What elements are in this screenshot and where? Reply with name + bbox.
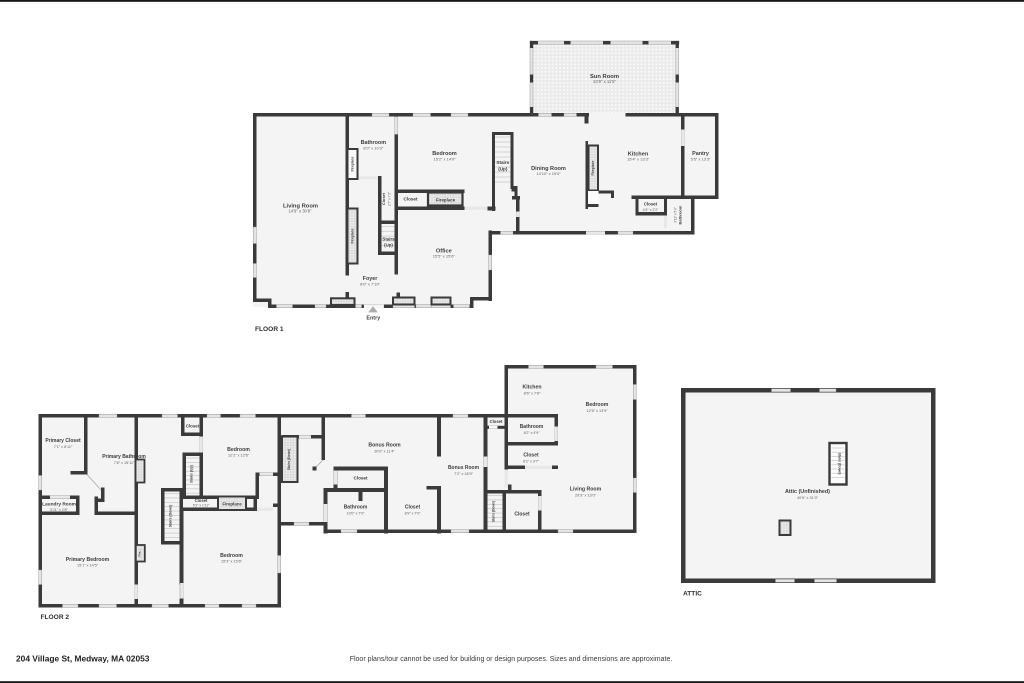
svg-text:Bathroom: Bathroom xyxy=(344,505,368,511)
svg-text:FLOOR 1: FLOOR 1 xyxy=(255,326,284,333)
svg-text:5’11” x 2’8”: 5’11” x 2’8” xyxy=(50,508,68,512)
svg-text:23’6” x 11’5”: 23’6” x 11’5” xyxy=(593,79,616,84)
svg-text:Stairs (Down): Stairs (Down) xyxy=(169,505,173,528)
svg-text:Floor plans/tour cannot be use: Floor plans/tour cannot be used for buil… xyxy=(350,656,673,663)
svg-text:Bedroom: Bedroom xyxy=(227,447,250,453)
svg-text:15’1” x 14’5”: 15’1” x 14’5” xyxy=(77,564,99,568)
svg-text:Bedroom: Bedroom xyxy=(220,553,243,559)
svg-text:20’3” x 13’0”: 20’3” x 13’0” xyxy=(575,494,597,498)
svg-text:8’2” x 3’7”: 8’2” x 3’7” xyxy=(523,459,540,463)
svg-text:8’0” x 10’3”: 8’0” x 10’3” xyxy=(363,145,383,150)
svg-text:Closet: Closet xyxy=(353,476,368,481)
svg-text:Bathroom: Bathroom xyxy=(678,205,683,224)
svg-text:Closet: Closet xyxy=(644,202,658,207)
svg-text:15’3” x 15’6”: 15’3” x 15’6” xyxy=(221,560,243,564)
svg-text:8’6” x 7’8”: 8’6” x 7’8” xyxy=(524,392,541,396)
svg-text:12’5” x 13’9”: 12’5” x 13’9” xyxy=(587,409,609,413)
svg-text:4’4” x 2’2”: 4’4” x 2’2” xyxy=(643,208,660,212)
svg-text:Closet: Closet xyxy=(523,453,539,459)
svg-text:Stairs (Down): Stairs (Down) xyxy=(287,449,291,470)
svg-text:2’7” x 7’3”: 2’7” x 7’3” xyxy=(387,192,391,206)
svg-text:Closet: Closet xyxy=(195,498,208,503)
svg-text:5’3” x 1’11”: 5’3” x 1’11” xyxy=(193,503,210,507)
svg-text:(Up): (Up) xyxy=(384,243,393,248)
svg-text:Bonus Room: Bonus Room xyxy=(448,465,480,471)
svg-text:Stairs (Down): Stairs (Down) xyxy=(838,453,842,475)
svg-text:14’9” x 30’8”: 14’9” x 30’8” xyxy=(288,209,312,214)
svg-text:10’0” x 7’0”: 10’0” x 7’0” xyxy=(347,511,366,515)
svg-text:Closet: Closet xyxy=(186,424,200,429)
svg-text:14’10” x 19’0”: 14’10” x 19’0” xyxy=(536,171,561,176)
svg-text:8’0” x 7’10”: 8’0” x 7’10” xyxy=(360,281,380,286)
svg-text:FLOOR 2: FLOOR 2 xyxy=(41,614,70,621)
svg-text:204 Village St, Medway, MA 020: 204 Village St, Medway, MA 02053 xyxy=(16,654,150,664)
svg-text:3’11” x 5’4”: 3’11” x 5’4” xyxy=(673,207,677,223)
svg-text:Closet: Closet xyxy=(490,419,503,424)
svg-text:Laundry Room: Laundry Room xyxy=(42,502,76,508)
svg-text:8’2” x 4’9”: 8’2” x 4’9” xyxy=(524,431,541,435)
svg-text:Bonus Room: Bonus Room xyxy=(368,443,401,449)
svg-text:Primary Bedroom: Primary Bedroom xyxy=(66,557,110,563)
svg-text:Living Room: Living Room xyxy=(570,487,602,493)
svg-text:Fireplace: Fireplace xyxy=(436,197,456,202)
svg-text:Closet: Closet xyxy=(403,197,418,202)
svg-text:Fireplace: Fireplace xyxy=(222,501,242,506)
svg-text:Stairs: Stairs xyxy=(382,237,395,242)
svg-text:Kitchen: Kitchen xyxy=(522,385,541,391)
svg-text:15’4” x 13’3”: 15’4” x 13’3” xyxy=(627,157,650,162)
svg-text:Stairs: Stairs xyxy=(496,160,509,165)
svg-text:Bedroom: Bedroom xyxy=(586,402,609,408)
svg-text:ATTIC: ATTIC xyxy=(683,591,702,598)
svg-text:20’0” x 11’4”: 20’0” x 11’4” xyxy=(374,450,395,454)
svg-text:Fireplace: Fireplace xyxy=(350,156,354,171)
svg-text:Attic (Unfinished): Attic (Unfinished) xyxy=(785,489,830,495)
svg-text:12’2” x 12’6”: 12’2” x 12’6” xyxy=(228,454,250,458)
svg-text:Fire...: Fire... xyxy=(138,549,142,556)
svg-text:(Up): (Up) xyxy=(498,167,508,172)
svg-text:7’2” x 18’9”: 7’2” x 18’9” xyxy=(454,472,474,476)
svg-text:Closet: Closet xyxy=(381,192,386,205)
svg-text:Bathroom: Bathroom xyxy=(520,424,544,430)
svg-text:Fireplace: Fireplace xyxy=(350,228,354,243)
svg-text:40’6” x 31’0”: 40’6” x 31’0” xyxy=(797,496,819,500)
svg-text:5’5” x 13’3”: 5’5” x 13’3” xyxy=(691,156,711,161)
svg-text:Entry: Entry xyxy=(366,316,380,322)
svg-text:Fireplace: Fireplace xyxy=(591,160,595,175)
svg-text:Closet: Closet xyxy=(405,505,421,511)
svg-text:Primary Closet: Primary Closet xyxy=(45,438,81,444)
svg-text:Stairs (Down): Stairs (Down) xyxy=(491,501,495,522)
svg-text:Primary Bathroom: Primary Bathroom xyxy=(102,454,146,460)
svg-text:7’1” x 8’11”: 7’1” x 8’11” xyxy=(54,445,73,449)
svg-text:15’5” x 15’6”: 15’5” x 15’6” xyxy=(433,254,456,259)
svg-text:8’9” x 7’0”: 8’9” x 7’0” xyxy=(405,511,422,515)
svg-text:15’2” x 14’9”: 15’2” x 14’9” xyxy=(433,157,456,162)
svg-text:7’8” x 15’11”: 7’8” x 15’11” xyxy=(114,461,135,465)
svg-text:Stairs (Up): Stairs (Up) xyxy=(189,465,193,483)
svg-text:Closet: Closet xyxy=(514,512,530,518)
